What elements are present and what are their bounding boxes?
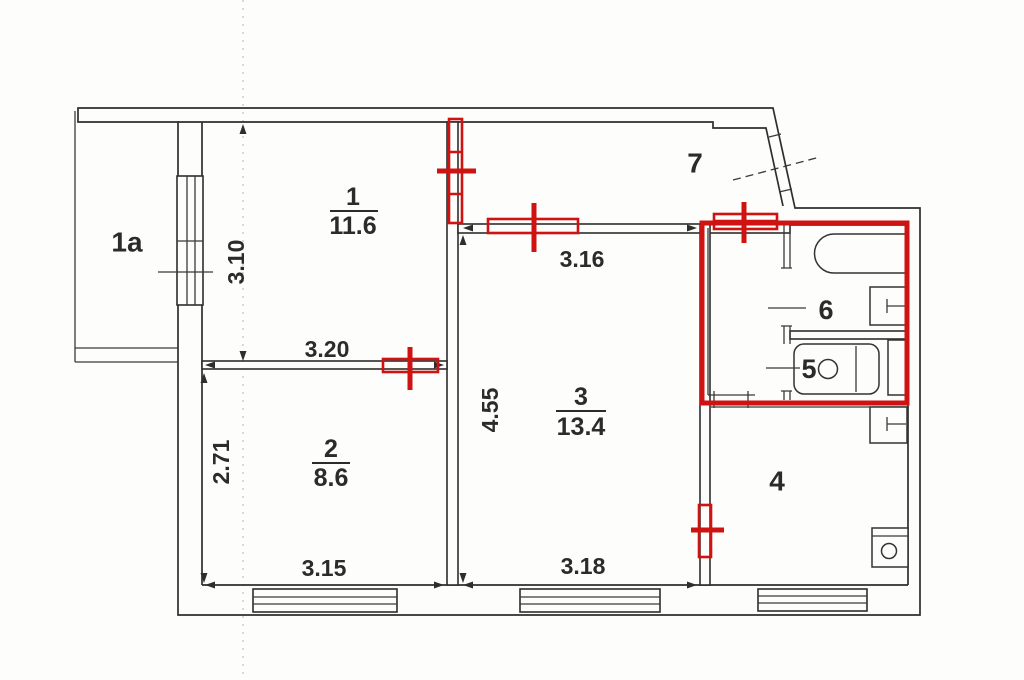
dim-room1-width: 3.20 [305, 336, 350, 362]
room-label-balcony: 1a [111, 227, 143, 258]
window-icon-room3 [520, 589, 660, 612]
bathroom-door-opening [781, 268, 792, 326]
room2-area: 8.6 [314, 464, 349, 492]
room-label-bathroom: 6 [818, 295, 833, 325]
dim-room3-depth: 4.55 [477, 387, 503, 432]
entrance-door [733, 134, 820, 192]
dim-room3-width-bottom: 3.18 [561, 553, 606, 579]
floor-plan-drawing: 1a 1 11.6 2 8.6 3 13.4 7 4 6 5 3.20 3.16… [0, 0, 1024, 680]
floor-plan-scan: 1a 1 11.6 2 8.6 3 13.4 7 4 6 5 3.20 3.16… [0, 0, 1024, 680]
windows [158, 176, 867, 612]
room3-number: 3 [574, 383, 588, 411]
window-icon-room4 [758, 589, 867, 611]
room-label-toilet: 5 [801, 354, 816, 384]
bathtub-icon [815, 234, 908, 273]
room3-area: 13.4 [557, 413, 606, 441]
room-label-kitchen: 4 [769, 466, 785, 497]
room2-number: 2 [324, 435, 338, 463]
dim-room3-width-top: 3.16 [560, 246, 605, 272]
room-label-hallway: 7 [687, 148, 703, 179]
window-icon-room2 [253, 589, 397, 612]
vent-duct-icon [888, 340, 907, 395]
room1-number: 1 [346, 183, 360, 211]
washbasin-icon-room4 [870, 407, 907, 443]
arrow-4-55 [460, 235, 467, 583]
wall-bathroom-toilet [790, 331, 908, 339]
dim-room1-depth: 3.10 [223, 240, 249, 285]
toilet-bowl [819, 360, 838, 379]
room1-area: 11.6 [329, 212, 376, 240]
dim-room2-depth: 2.71 [208, 439, 234, 484]
kitchen-sink-drain [882, 544, 897, 559]
dim-room2-width: 3.15 [302, 555, 347, 581]
